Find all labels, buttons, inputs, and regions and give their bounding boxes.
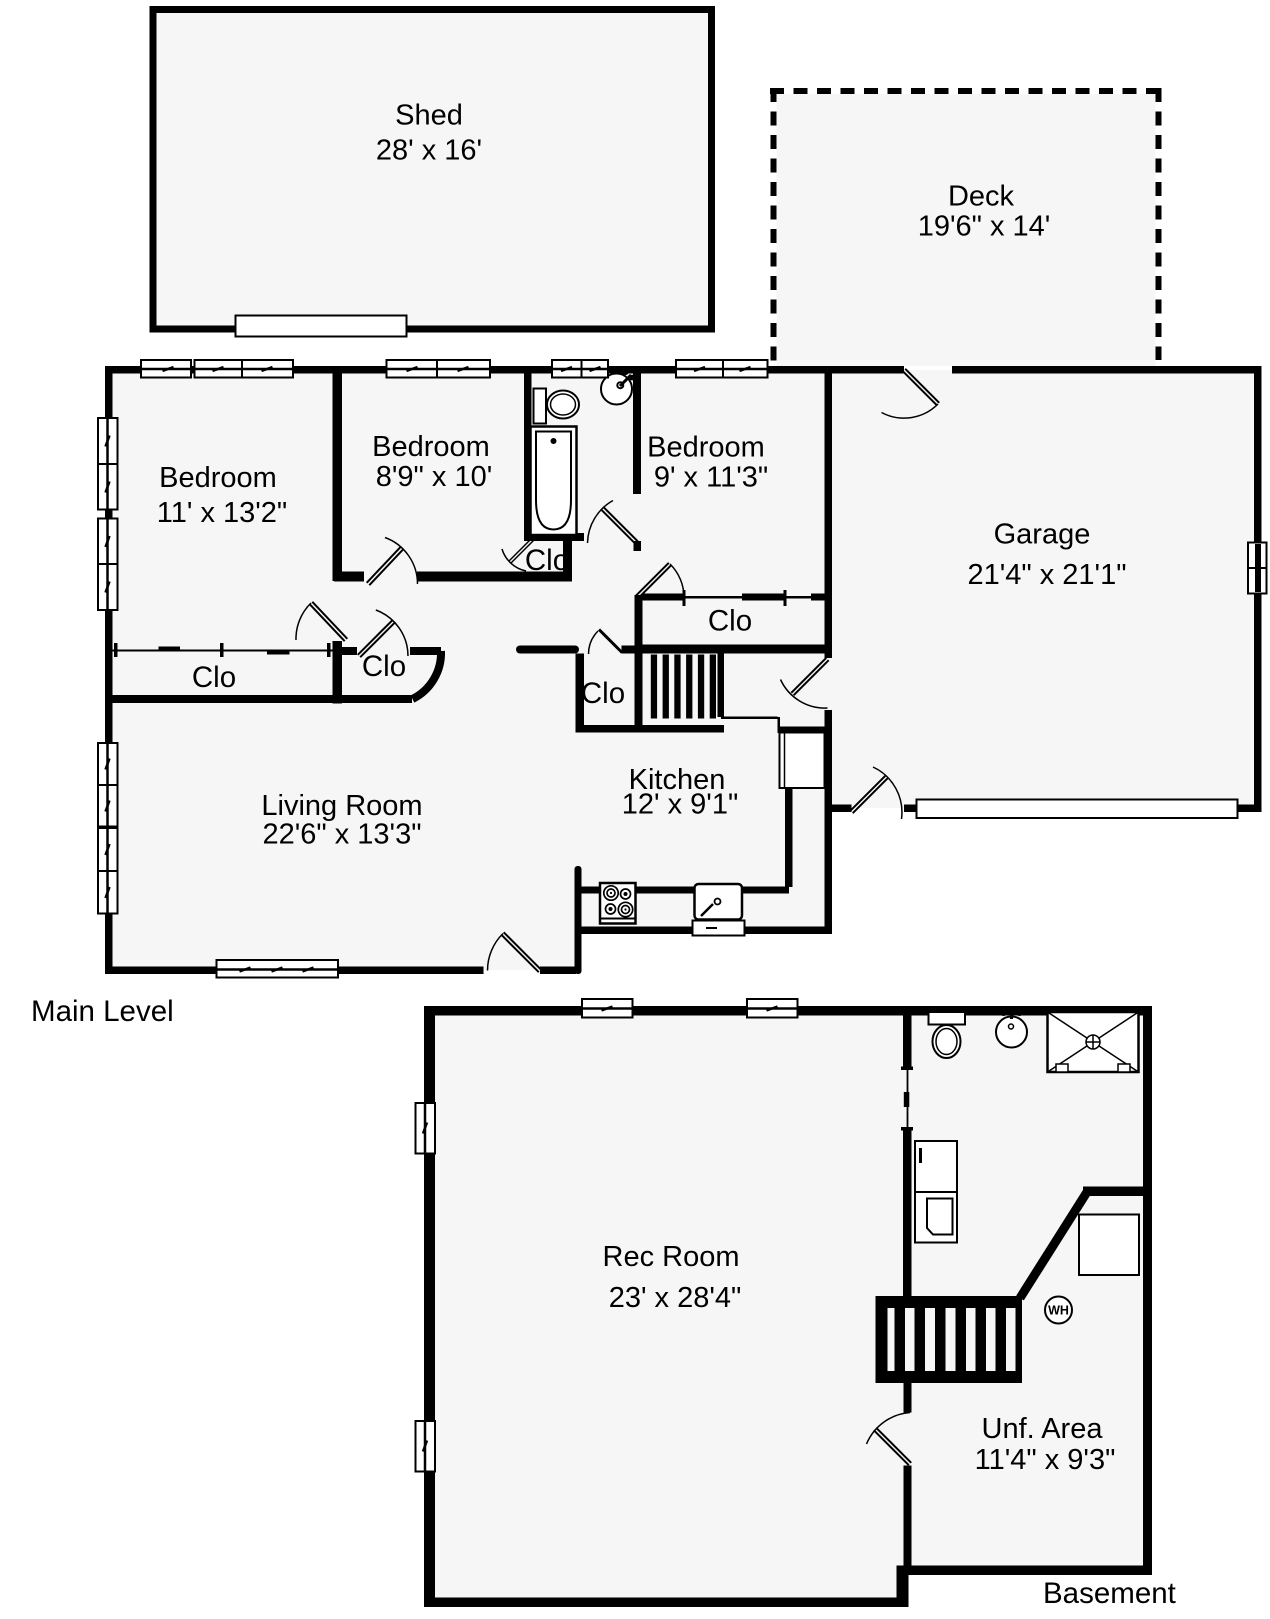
svg-text:Clo: Clo [192, 661, 236, 694]
svg-text:Clo: Clo [525, 544, 569, 577]
svg-text:Clo: Clo [708, 605, 752, 638]
svg-text:12' x 9'1": 12' x 9'1" [622, 789, 739, 821]
svg-text:Unf. Area: Unf. Area [982, 1413, 1104, 1445]
svg-text:Garage: Garage [994, 519, 1091, 551]
svg-text:11' x 13'2": 11' x 13'2" [157, 497, 287, 529]
svg-text:9' x 11'3": 9' x 11'3" [654, 462, 768, 494]
svg-text:11'4" x 9'3": 11'4" x 9'3" [975, 1444, 1116, 1476]
svg-text:Bedroom: Bedroom [647, 432, 765, 464]
svg-text:Living Room: Living Room [261, 790, 422, 822]
svg-text:Clo: Clo [362, 650, 406, 683]
svg-text:Basement: Basement [1043, 1577, 1176, 1610]
svg-text:Main Level: Main Level [31, 995, 174, 1028]
svg-text:19'6" x 14': 19'6" x 14' [918, 211, 1051, 243]
svg-text:22'6" x 13'3": 22'6" x 13'3" [262, 819, 421, 851]
svg-text:Deck: Deck [948, 181, 1015, 213]
svg-text:21'4" x 21'1": 21'4" x 21'1" [967, 559, 1126, 591]
svg-text:Rec Room: Rec Room [603, 1241, 740, 1273]
svg-text:28' x 16': 28' x 16' [376, 135, 482, 167]
svg-text:23' x 28'4": 23' x 28'4" [609, 1282, 742, 1314]
svg-text:8'9" x 10': 8'9" x 10' [376, 461, 493, 493]
svg-text:Bedroom: Bedroom [372, 431, 490, 463]
svg-text:WH: WH [1048, 1304, 1069, 1318]
svg-text:Bedroom: Bedroom [159, 462, 277, 494]
svg-text:Clo: Clo [581, 677, 625, 710]
svg-text:Shed: Shed [395, 100, 463, 132]
